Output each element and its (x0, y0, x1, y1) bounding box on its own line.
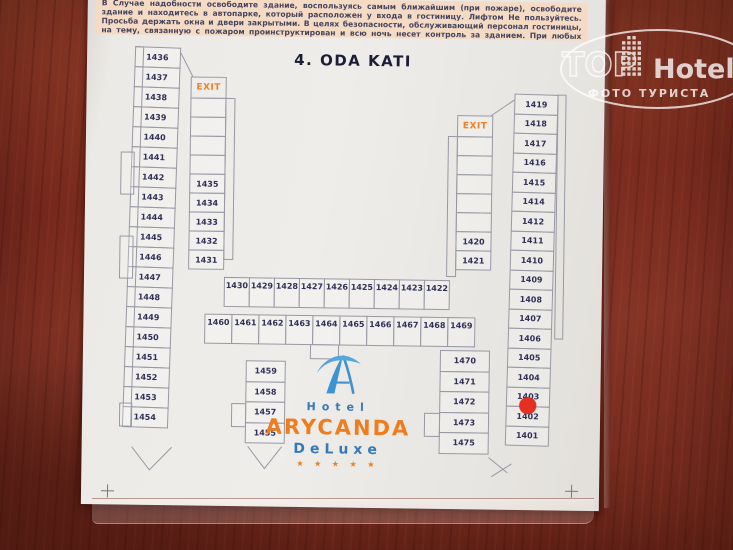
registration-mark (101, 484, 114, 497)
room-number: 1454 (133, 412, 156, 422)
room-number: 1452 (135, 372, 158, 382)
room-number: 1411 (521, 236, 544, 246)
room-number: 1460 (207, 318, 229, 327)
room-number: 1441 (143, 153, 166, 163)
room-cell: 1470 (440, 350, 490, 372)
room-cell: 1440 (132, 126, 179, 149)
room-number: 1420 (462, 237, 484, 246)
balcony-box (231, 403, 246, 427)
room-cell: 1412 (511, 211, 556, 233)
room-number: 1430 (226, 281, 248, 290)
watermark-subtitle: ФОТО ТУРИСТА (588, 87, 710, 100)
room-cell: 1426 (324, 278, 350, 308)
room-number: 1415 (523, 178, 546, 188)
room-cell: 1449 (125, 306, 172, 329)
room-cell: 1461 (231, 314, 259, 344)
room-cell: 1473 (439, 411, 489, 433)
exit-sign-right: EXIT (457, 115, 493, 138)
room-cell: 1446 (128, 246, 175, 269)
balcony-box (119, 235, 134, 278)
instructions-text: В Случае надобности освободите здание, в… (101, 0, 582, 41)
room-number: 1463 (288, 319, 310, 328)
diagonal-wall (491, 464, 511, 477)
room-cell: 1421 (455, 250, 491, 271)
room-number: 1417 (524, 139, 547, 149)
room-number: 1425 (351, 283, 373, 292)
inner-left-rooms: 14351434143314321431 (188, 97, 226, 269)
room-cell: 1409 (509, 269, 554, 291)
room-number: 1462 (261, 318, 283, 327)
north-corridor-rooms: 143014291428142714261425142414231422 (224, 277, 450, 310)
registration-mark (565, 485, 578, 498)
room-cell: 1408 (509, 289, 554, 311)
room-number: 1437 (145, 73, 168, 83)
room-cell: 1431 (188, 249, 224, 270)
empty-cell (190, 135, 226, 156)
hotel-logo: Hotel ARYCANDA DeLuxe ★ ★ ★ ★ ★ (259, 350, 417, 469)
room-number: 1416 (523, 158, 546, 168)
empty-cell (456, 174, 492, 195)
room-cell: 1404 (506, 367, 551, 389)
corridor-strip (446, 136, 458, 277)
room-number: 1445 (140, 232, 163, 242)
balcony-box (119, 402, 132, 426)
room-number: 1449 (137, 312, 160, 322)
room-number: 1405 (518, 353, 541, 363)
room-number: 1404 (517, 373, 540, 383)
watermark-hotels-text: Hotels (653, 54, 733, 85)
room-cell: 1414 (511, 191, 556, 213)
diagonal-wall (181, 53, 193, 76)
room-cell: 1406 (507, 328, 552, 350)
room-number: 1472 (453, 397, 475, 406)
room-cell: 1424 (374, 279, 400, 309)
room-number: 1451 (136, 352, 159, 362)
diagonal-wall (491, 100, 514, 116)
room-number: 1421 (462, 256, 484, 265)
room-cell: 1467 (393, 316, 421, 346)
room-cell: 1466 (366, 316, 394, 346)
room-number: 1450 (136, 332, 159, 342)
watermark-top-text: TOP (562, 45, 637, 84)
room-number: 1447 (138, 272, 161, 282)
room-number: 1422 (426, 284, 448, 293)
room-cell: 1401 (505, 425, 550, 447)
room-number: 1470 (454, 356, 476, 365)
corridor-strip (223, 98, 235, 260)
instructions-band: В Случае надобности освободите здание, в… (95, 0, 587, 41)
room-number: 1418 (524, 119, 547, 129)
floor-title: 4. ODA KATI (283, 51, 423, 71)
empty-cell (457, 136, 493, 157)
room-cell: 1444 (129, 206, 176, 229)
room-cell: 1417 (513, 133, 558, 155)
room-cell: 1427 (299, 278, 325, 308)
room-cell: 1423 (399, 279, 425, 309)
room-cell: 1405 (507, 347, 552, 369)
south-corridor-rooms: 1460146114621463146414651466146714681469 (204, 314, 475, 348)
room-number: 1414 (522, 197, 545, 207)
room-cell: 1465 (339, 316, 367, 346)
room-number: 1426 (326, 282, 348, 291)
room-cell: 1463 (285, 315, 313, 345)
room-cell: 1438 (133, 86, 180, 109)
logo-hotel-word: Hotel (260, 399, 416, 414)
room-number: 1453 (134, 392, 157, 402)
room-cell: 1472 (439, 391, 489, 413)
room-number: 1423 (401, 283, 423, 292)
empty-cell (189, 154, 225, 175)
room-cell: 1418 (513, 113, 558, 135)
room-cell: 1452 (123, 366, 170, 389)
room-cell: 1462 (258, 314, 286, 344)
room-cell: 1451 (124, 346, 171, 369)
room-cell: 1416 (512, 152, 557, 174)
room-number: 1407 (519, 314, 542, 324)
room-number: 1466 (369, 320, 391, 329)
room-cell: 1460 (204, 314, 232, 344)
room-cell: 1410 (510, 250, 555, 272)
logo-deluxe-word: DeLuxe (260, 440, 416, 458)
room-number: 1444 (140, 212, 163, 222)
exit-label: EXIT (463, 121, 488, 131)
exit-sign-left: EXIT (190, 76, 226, 99)
room-number: 1408 (520, 295, 543, 305)
room-cell: 1475 (439, 432, 489, 454)
room-number: 1461 (234, 318, 256, 327)
room-number: 1432 (195, 236, 217, 245)
evacuation-plan-sheet: В Случае надобности освободите здание, в… (81, 0, 606, 511)
room-cell: 1464 (312, 315, 340, 345)
empty-cell (190, 116, 226, 137)
room-number: 1424 (376, 283, 398, 292)
room-cell: 1450 (125, 326, 172, 349)
room-number: 1467 (396, 320, 418, 329)
room-cell: 1419 (514, 94, 559, 116)
tophotels-watermark: TOP Hotels ФОТО ТУРИСТА (556, 26, 733, 112)
empty-cell (456, 212, 492, 233)
room-number: 1464 (315, 319, 337, 328)
mid-right-rooms: 14701471147214731475 (439, 350, 490, 454)
room-cell: 1448 (126, 286, 173, 309)
bay-window (131, 447, 171, 471)
room-number: 1427 (301, 282, 323, 291)
arycanda-a-icon (312, 351, 365, 396)
exit-label: EXIT (196, 83, 221, 93)
room-number: 1473 (453, 418, 475, 427)
room-cell: 1420 (455, 231, 491, 252)
room-number: 1465 (342, 320, 364, 329)
room-number: 1409 (520, 275, 543, 285)
plastic-sleeve-flap (92, 498, 594, 524)
room-cell: 1435 (189, 173, 225, 194)
room-cell: 1430 (224, 277, 250, 307)
room-number: 1434 (196, 198, 218, 207)
room-number: 1440 (143, 133, 166, 143)
room-number: 1412 (522, 217, 545, 227)
photo-of-floor-plan-sign: В Случае надобности освободите здание, в… (0, 0, 733, 550)
room-number: 1471 (453, 377, 475, 386)
empty-cell (456, 155, 492, 176)
room-number: 1428 (276, 282, 298, 291)
room-cell: 1425 (349, 279, 375, 309)
room-number: 1475 (453, 438, 475, 447)
room-number: 1438 (145, 93, 168, 103)
room-number: 1401 (516, 431, 539, 441)
room-cell: 1471 (439, 370, 489, 392)
room-cell: 1415 (512, 172, 557, 194)
logo-stars: ★ ★ ★ ★ ★ (259, 458, 415, 469)
room-cell: 1433 (189, 211, 225, 232)
room-cell: 1447 (127, 266, 174, 289)
room-cell: 1436 (134, 46, 181, 69)
logo-name-word: ARYCANDA (260, 414, 416, 440)
room-number: 1468 (423, 321, 445, 330)
diagonal-wall (488, 458, 507, 473)
room-number: 1439 (144, 113, 167, 123)
room-number: 1446 (139, 252, 162, 262)
room-cell: 1468 (420, 317, 448, 347)
room-cell: 1432 (188, 230, 224, 251)
room-number: 1448 (138, 292, 161, 302)
empty-cell (190, 97, 226, 118)
room-number: 1436 (146, 53, 169, 63)
room-number: 1443 (141, 192, 164, 202)
room-number: 1469 (450, 321, 472, 330)
room-cell: 1422 (424, 280, 450, 310)
room-cell: 1428 (274, 278, 300, 308)
room-cell: 1445 (128, 226, 175, 249)
balcony-box (424, 413, 440, 437)
room-cell: 1442 (130, 166, 177, 189)
room-cell: 1429 (249, 277, 275, 307)
room-cell: 1469 (447, 317, 475, 347)
room-number: 1419 (525, 100, 548, 110)
right-wing-rooms: 1419141814171416141514141412141114101409… (505, 94, 559, 447)
room-number: 1431 (195, 255, 217, 264)
room-cell: 1411 (510, 230, 555, 252)
empty-cell (456, 193, 492, 214)
room-cell: 1441 (131, 146, 178, 169)
room-cell: 1437 (134, 66, 181, 89)
room-number: 1410 (521, 256, 544, 266)
room-number: 1429 (251, 281, 273, 290)
room-cell: 1434 (189, 192, 225, 213)
room-number: 1442 (142, 173, 165, 183)
room-cell: 1407 (508, 308, 553, 330)
room-cell: 1439 (132, 106, 179, 129)
inner-right-rooms: 14201421 (455, 136, 493, 270)
balcony-box (120, 151, 135, 194)
room-number: 1433 (196, 217, 218, 226)
room-number: 1406 (519, 334, 542, 344)
room-cell: 1443 (130, 186, 177, 209)
room-number: 1435 (196, 179, 218, 188)
